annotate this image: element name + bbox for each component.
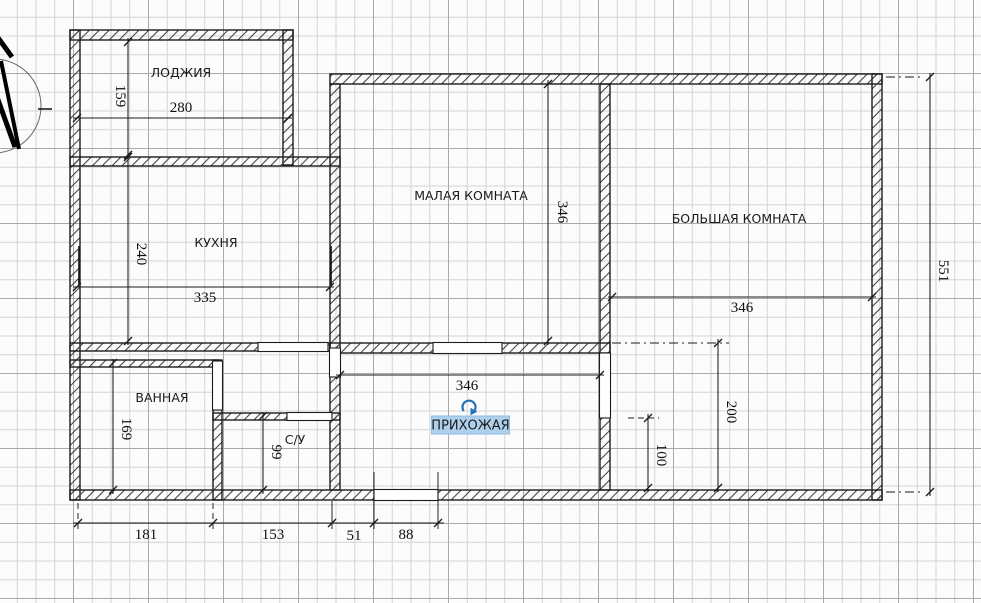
compass-needle-top bbox=[0, 35, 12, 57]
dim-label: 88 bbox=[399, 527, 414, 543]
dim-label: 169 bbox=[118, 418, 134, 441]
wall-smallroom-bigroom[interactable] bbox=[600, 84, 610, 490]
dim-label: 551 bbox=[935, 260, 951, 283]
wall-outer-bottom[interactable] bbox=[70, 490, 882, 500]
wall-loggia-top[interactable] bbox=[70, 30, 293, 40]
door-openings[interactable] bbox=[213, 343, 611, 501]
dim-wall-200: 200 bbox=[612, 339, 739, 492]
door-small-room[interactable] bbox=[433, 343, 502, 354]
compass-circle bbox=[0, 59, 41, 153]
room-label-hallway[interactable]: ПРИХОЖАЯ bbox=[431, 419, 509, 434]
dim-label: 159 bbox=[112, 85, 128, 108]
dim-loggia-width: 280 bbox=[73, 100, 292, 122]
wall-outer-top[interactable] bbox=[330, 74, 882, 84]
dim-label: 240 bbox=[133, 243, 149, 266]
dim-loggia-height: 159 bbox=[112, 38, 132, 159]
wall-kitchen-top[interactable] bbox=[70, 157, 340, 166]
dim-kitchen-width: 335 bbox=[73, 283, 334, 306]
dim-label: 346 bbox=[731, 300, 754, 316]
room-label-loggia[interactable]: ЛОДЖИЯ bbox=[151, 65, 212, 80]
dim-label: 335 bbox=[194, 290, 217, 306]
dim-hallway-width: 346 bbox=[336, 371, 604, 394]
door-wc[interactable] bbox=[287, 413, 332, 421]
door-entrance[interactable] bbox=[374, 490, 438, 501]
selected-label-hallway[interactable]: ПРИХОЖАЯ bbox=[431, 401, 509, 434]
dim-bathroom-height: 169 bbox=[109, 359, 134, 494]
dim-label: 200 bbox=[723, 401, 739, 424]
room-label-big-room[interactable]: БОЛЬШАЯ КОМНАТА bbox=[672, 211, 807, 226]
room-label-small-room[interactable]: МАЛАЯ КОМНАТА bbox=[414, 188, 528, 203]
dim-label: 51 bbox=[347, 528, 362, 544]
door-big-room[interactable] bbox=[600, 353, 611, 418]
compass-north-arrow-icon[interactable] bbox=[0, 35, 52, 153]
dim-wall-100: 100 bbox=[628, 414, 669, 492]
floorplan-canvas[interactable]: ЛОДЖИЯ КУХНЯ МАЛАЯ КОМНАТА БОЛЬШАЯ КОМНА… bbox=[0, 0, 981, 603]
door-bathroom[interactable] bbox=[213, 361, 223, 410]
dim-overall-height: 551 bbox=[886, 73, 951, 496]
floorplan-drawing: ЛОДЖИЯ КУХНЯ МАЛАЯ КОМНАТА БОЛЬШАЯ КОМНА… bbox=[0, 0, 981, 603]
dim-label: 153 bbox=[262, 527, 285, 543]
dim-small-room-height: 346 bbox=[544, 80, 570, 345]
dim-label: 346 bbox=[554, 201, 570, 224]
dim-label: 346 bbox=[456, 378, 479, 394]
dim-label: 100 bbox=[653, 444, 669, 467]
dim-bottom-chain: 181 153 51 88 bbox=[73, 472, 444, 544]
wall-bathroom-top[interactable] bbox=[70, 360, 218, 367]
wall-loggia-right[interactable] bbox=[283, 30, 293, 165]
dim-big-room-width: 346 bbox=[608, 293, 876, 316]
room-label-bathroom[interactable]: ВАННАЯ bbox=[135, 390, 188, 405]
room-label-wc[interactable]: С/У bbox=[285, 432, 306, 447]
door-kitchen[interactable] bbox=[258, 343, 328, 352]
dim-label: 181 bbox=[135, 527, 158, 543]
room-label-kitchen[interactable]: КУХНЯ bbox=[194, 235, 237, 250]
opening-hallway-corridor[interactable] bbox=[330, 348, 341, 377]
wall-outer-right[interactable] bbox=[872, 74, 882, 500]
dim-wc-height: 99 bbox=[259, 412, 284, 494]
dim-label: 280 bbox=[170, 100, 193, 116]
dim-label: 99 bbox=[268, 445, 284, 460]
dim-kitchen-height: 240 bbox=[124, 153, 149, 345]
